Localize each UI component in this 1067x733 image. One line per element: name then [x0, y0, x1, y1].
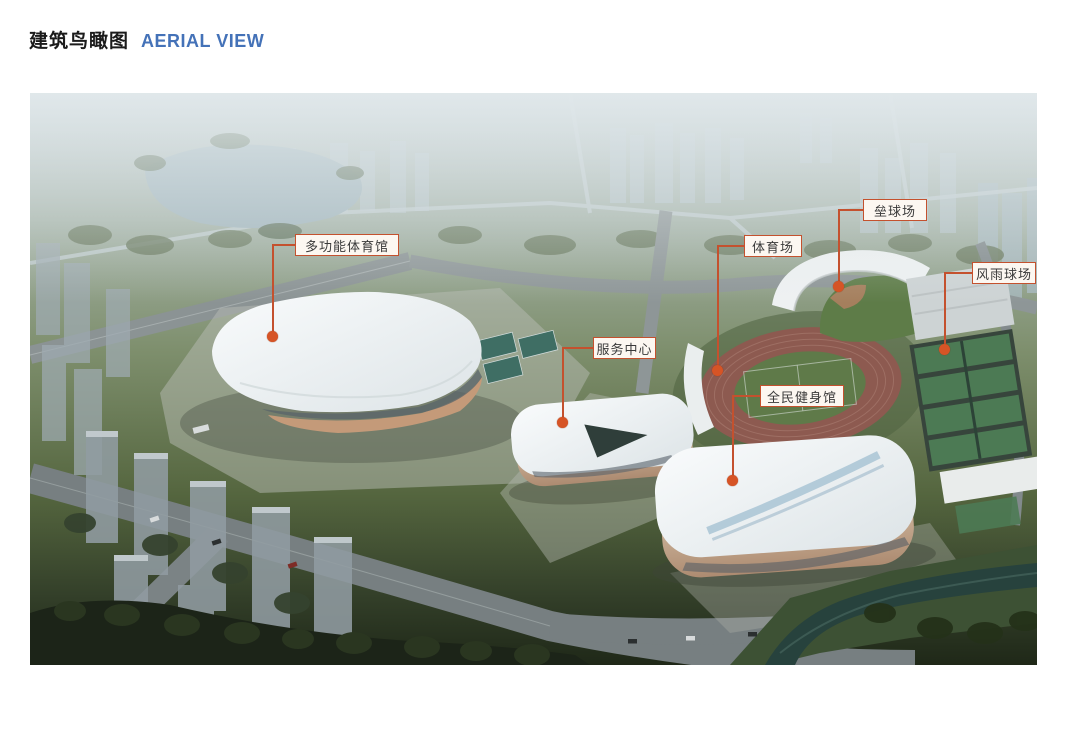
haze-overlay — [30, 93, 1037, 303]
leader-line — [272, 244, 274, 337]
leader-line — [717, 245, 719, 371]
leader-line — [732, 395, 734, 481]
leader-line — [563, 347, 593, 349]
callout-label: 垒球场 — [863, 199, 927, 221]
callout-label: 全民健身馆 — [760, 385, 844, 407]
page-title: 建筑鸟瞰图 AERIAL VIEW — [29, 26, 264, 53]
callout-label: 多功能体育馆 — [295, 234, 399, 256]
leader-line — [273, 244, 295, 246]
leader-dot — [939, 344, 950, 355]
leader-line — [733, 395, 760, 397]
leader-dot — [267, 331, 278, 342]
leader-dot — [833, 281, 844, 292]
leader-line — [718, 245, 744, 247]
callout-label: 体育场 — [744, 235, 802, 257]
leader-dot — [727, 475, 738, 486]
leader-dot — [712, 365, 723, 376]
page-title-english: AERIAL VIEW — [141, 31, 264, 52]
leader-line — [562, 347, 564, 423]
leader-line — [945, 272, 972, 274]
fitness-hall-building — [644, 431, 937, 594]
callout-label: 风雨球场 — [972, 262, 1036, 284]
leader-line — [838, 209, 840, 287]
callout-label: 服务中心 — [593, 337, 656, 359]
leader-line — [944, 272, 946, 350]
aerial-render-image — [30, 93, 1037, 665]
leader-line — [839, 209, 863, 211]
aerial-view-figure: 多功能体育馆 垒球场 体育场 风雨球场 服务中心 全民健身馆 — [30, 93, 1037, 665]
page-title-chinese: 建筑鸟瞰图 — [29, 26, 129, 53]
leader-dot — [557, 417, 568, 428]
